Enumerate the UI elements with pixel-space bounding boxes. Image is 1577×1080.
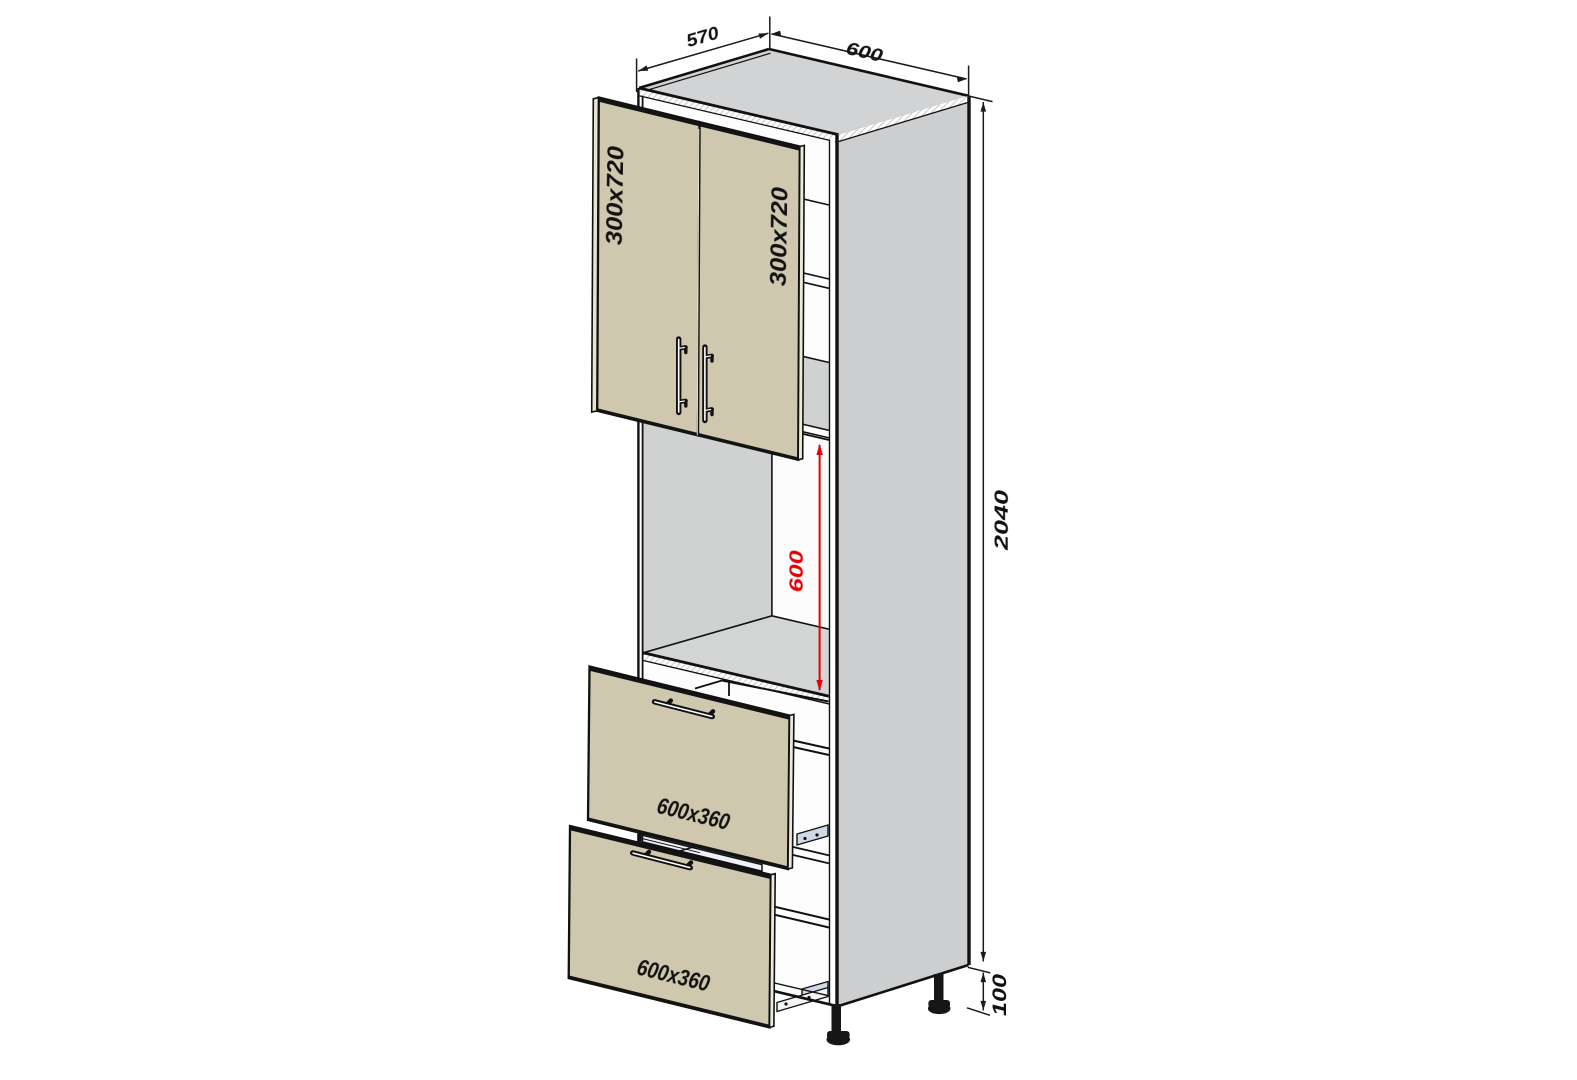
svg-text:300x720: 300x720 — [601, 146, 629, 246]
svg-text:100: 100 — [989, 974, 1011, 1016]
svg-text:600: 600 — [787, 550, 808, 593]
svg-text:2040: 2040 — [992, 489, 1013, 551]
svg-text:300x720: 300x720 — [765, 187, 793, 287]
